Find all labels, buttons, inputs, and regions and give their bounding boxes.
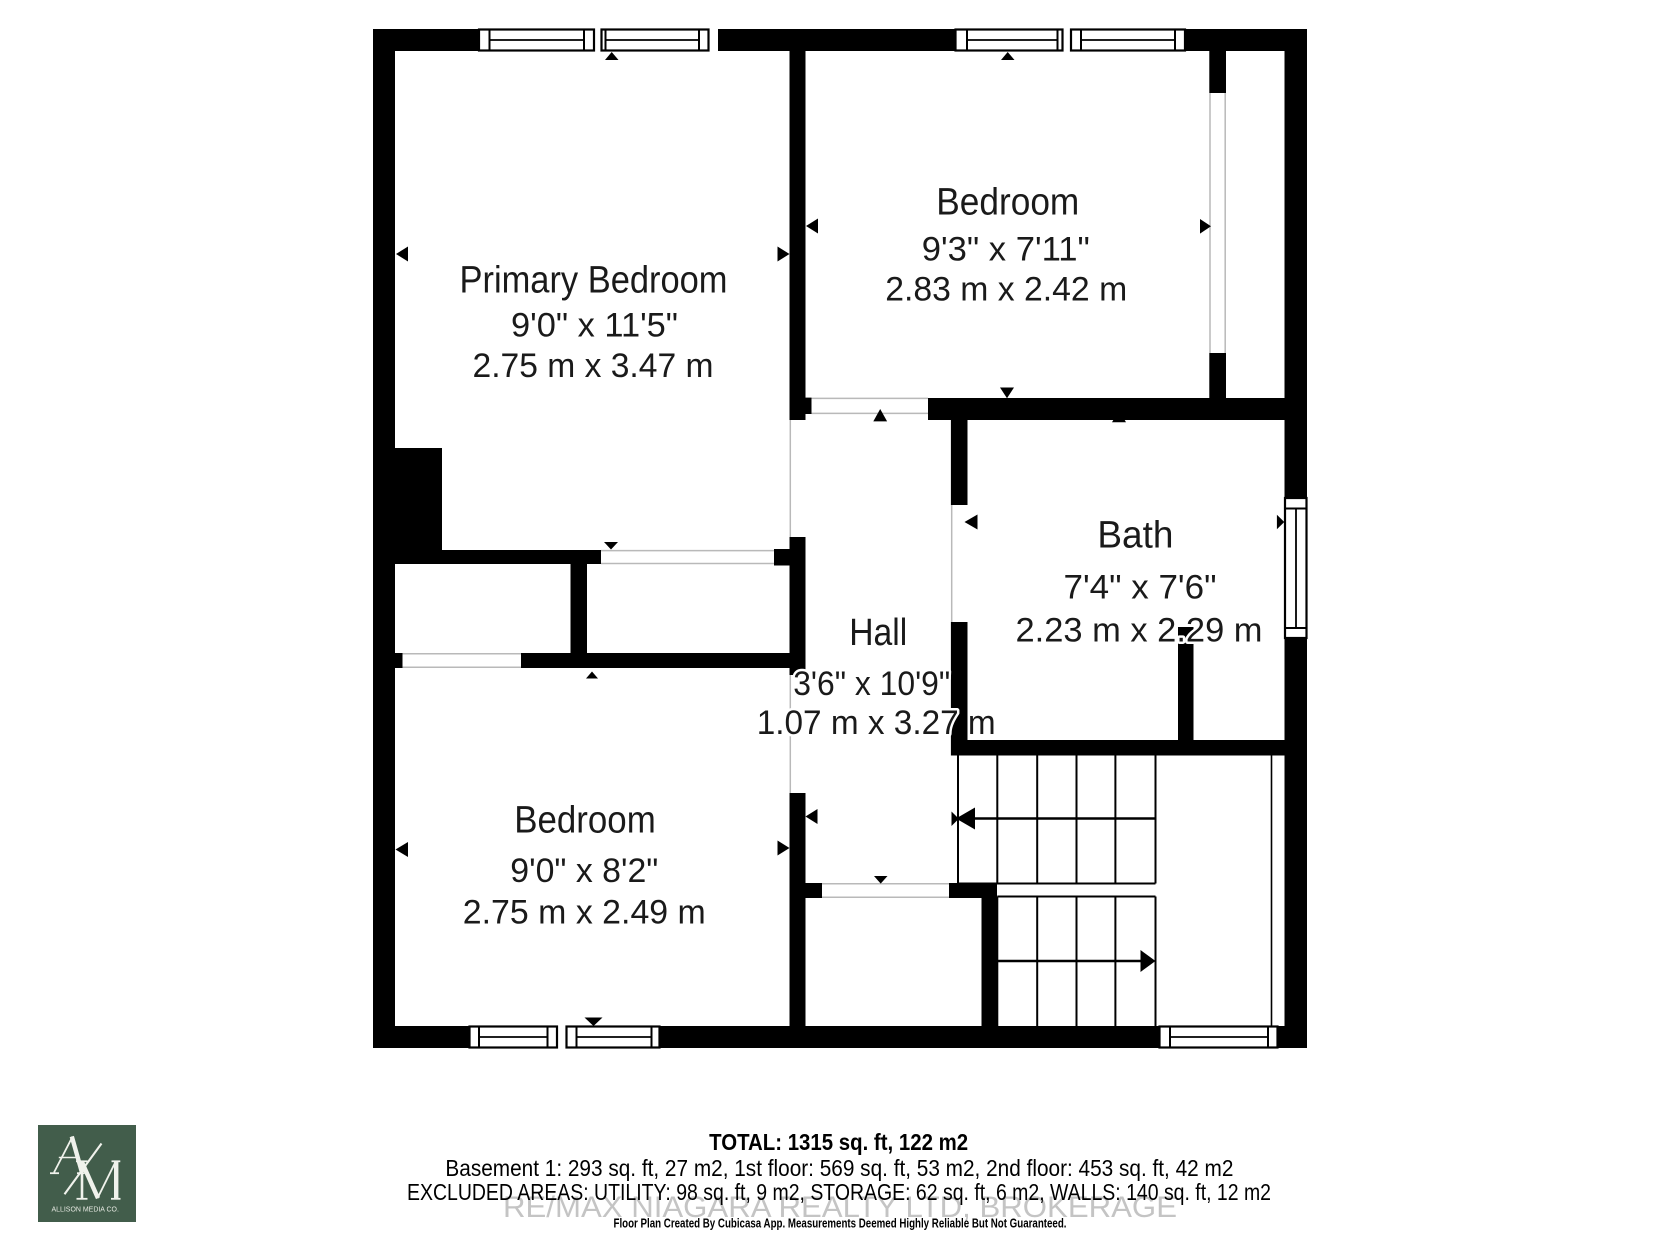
svg-text:2.23 m x 2.29 m: 2.23 m x 2.29 m [1016,612,1263,650]
svg-text:Bath: Bath [1097,515,1173,557]
svg-text:TOTAL: 1315 sq. ft, 122 m2: TOTAL: 1315 sq. ft, 122 m2 [709,1129,968,1155]
svg-text:Floor Plan Created By Cubicasa: Floor Plan Created By Cubicasa App. Meas… [614,1217,1067,1231]
svg-text:Primary Bedroom: Primary Bedroom [460,260,728,302]
svg-text:2.75 m x 3.47 m: 2.75 m x 3.47 m [473,347,714,385]
svg-text:1.07 m x 3.27 m: 1.07 m x 3.27 m [757,704,996,742]
svg-text:2.83 m x 2.42 m: 2.83 m x 2.42 m [885,270,1127,308]
svg-text:Bedroom: Bedroom [936,182,1079,224]
svg-text:ALLISON MEDIA CO.: ALLISON MEDIA CO. [51,1205,119,1214]
svg-text:3'6" x 10'9": 3'6" x 10'9" [793,665,950,703]
svg-text:EXCLUDED AREAS: UTILITY: 98 sq: EXCLUDED AREAS: UTILITY: 98 sq. ft, 9 m2… [407,1179,1271,1205]
svg-text:Hall: Hall [849,612,907,654]
svg-text:7'4" x 7'6": 7'4" x 7'6" [1064,568,1217,606]
svg-text:9'3" x 7'11": 9'3" x 7'11" [922,231,1090,269]
svg-text:9'0" x 8'2": 9'0" x 8'2" [510,852,658,890]
svg-text:Basement 1: 293 sq. ft, 27 m2,: Basement 1: 293 sq. ft, 27 m2, 1st floor… [445,1155,1233,1181]
svg-text:2.75 m x 2.49 m: 2.75 m x 2.49 m [463,894,706,932]
svg-text:Bedroom: Bedroom [514,800,656,842]
svg-text:9'0" x 11'5": 9'0" x 11'5" [511,307,678,345]
